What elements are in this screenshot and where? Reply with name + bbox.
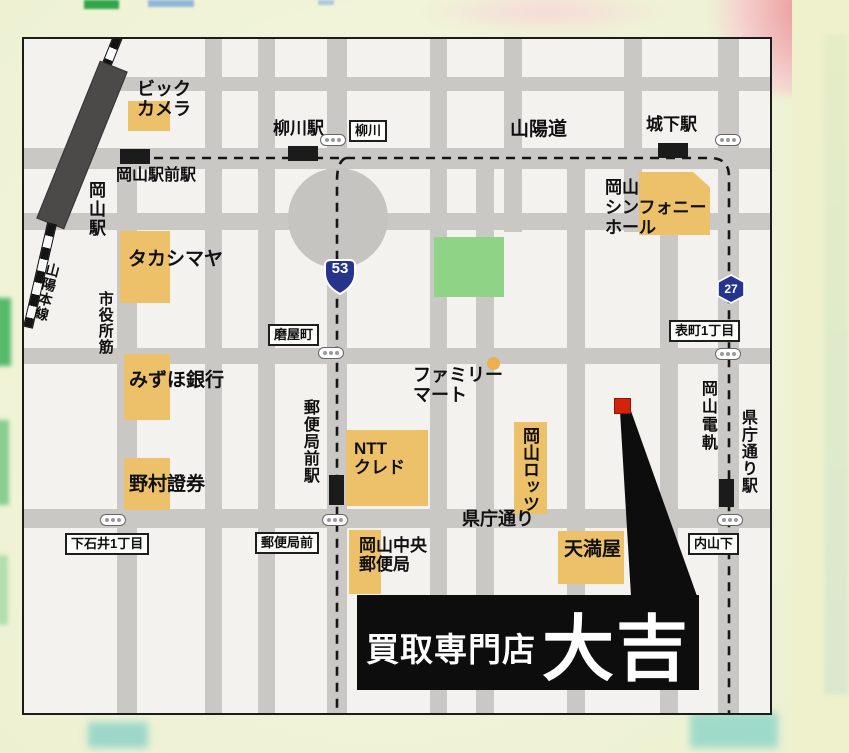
page-bleed-left-2 [0, 420, 9, 505]
page-bleed-green [84, 0, 119, 9]
store-banner: 買取専門店 大吉 [357, 595, 699, 690]
map-canvas: 岡山駅 山陽本線 岡山駅前駅 柳川駅 城下駅 郵便局前駅 県庁通り駅 柳川 磨屋… [22, 37, 772, 715]
store-location-marker [614, 398, 631, 414]
page-bleed-right-band [792, 0, 849, 753]
page-bleed-blue-2 [318, 0, 334, 5]
page-bleed-bottom-2 [690, 712, 778, 748]
page-bleed-bottom-1 [88, 722, 148, 748]
store-banner-prefix: 買取専門店 [366, 623, 536, 671]
page-bleed-left-1 [0, 298, 11, 366]
page-bleed-left-3 [0, 555, 8, 625]
page-bleed-blue [148, 0, 194, 7]
store-banner-name: 大吉 [542, 590, 690, 695]
page-bleed-pink [420, 0, 670, 34]
page-bleed-right-band-2 [824, 35, 849, 695]
flyer-map-page: 岡山駅 山陽本線 岡山駅前駅 柳川駅 城下駅 郵便局前駅 県庁通り駅 柳川 磨屋… [0, 0, 849, 753]
